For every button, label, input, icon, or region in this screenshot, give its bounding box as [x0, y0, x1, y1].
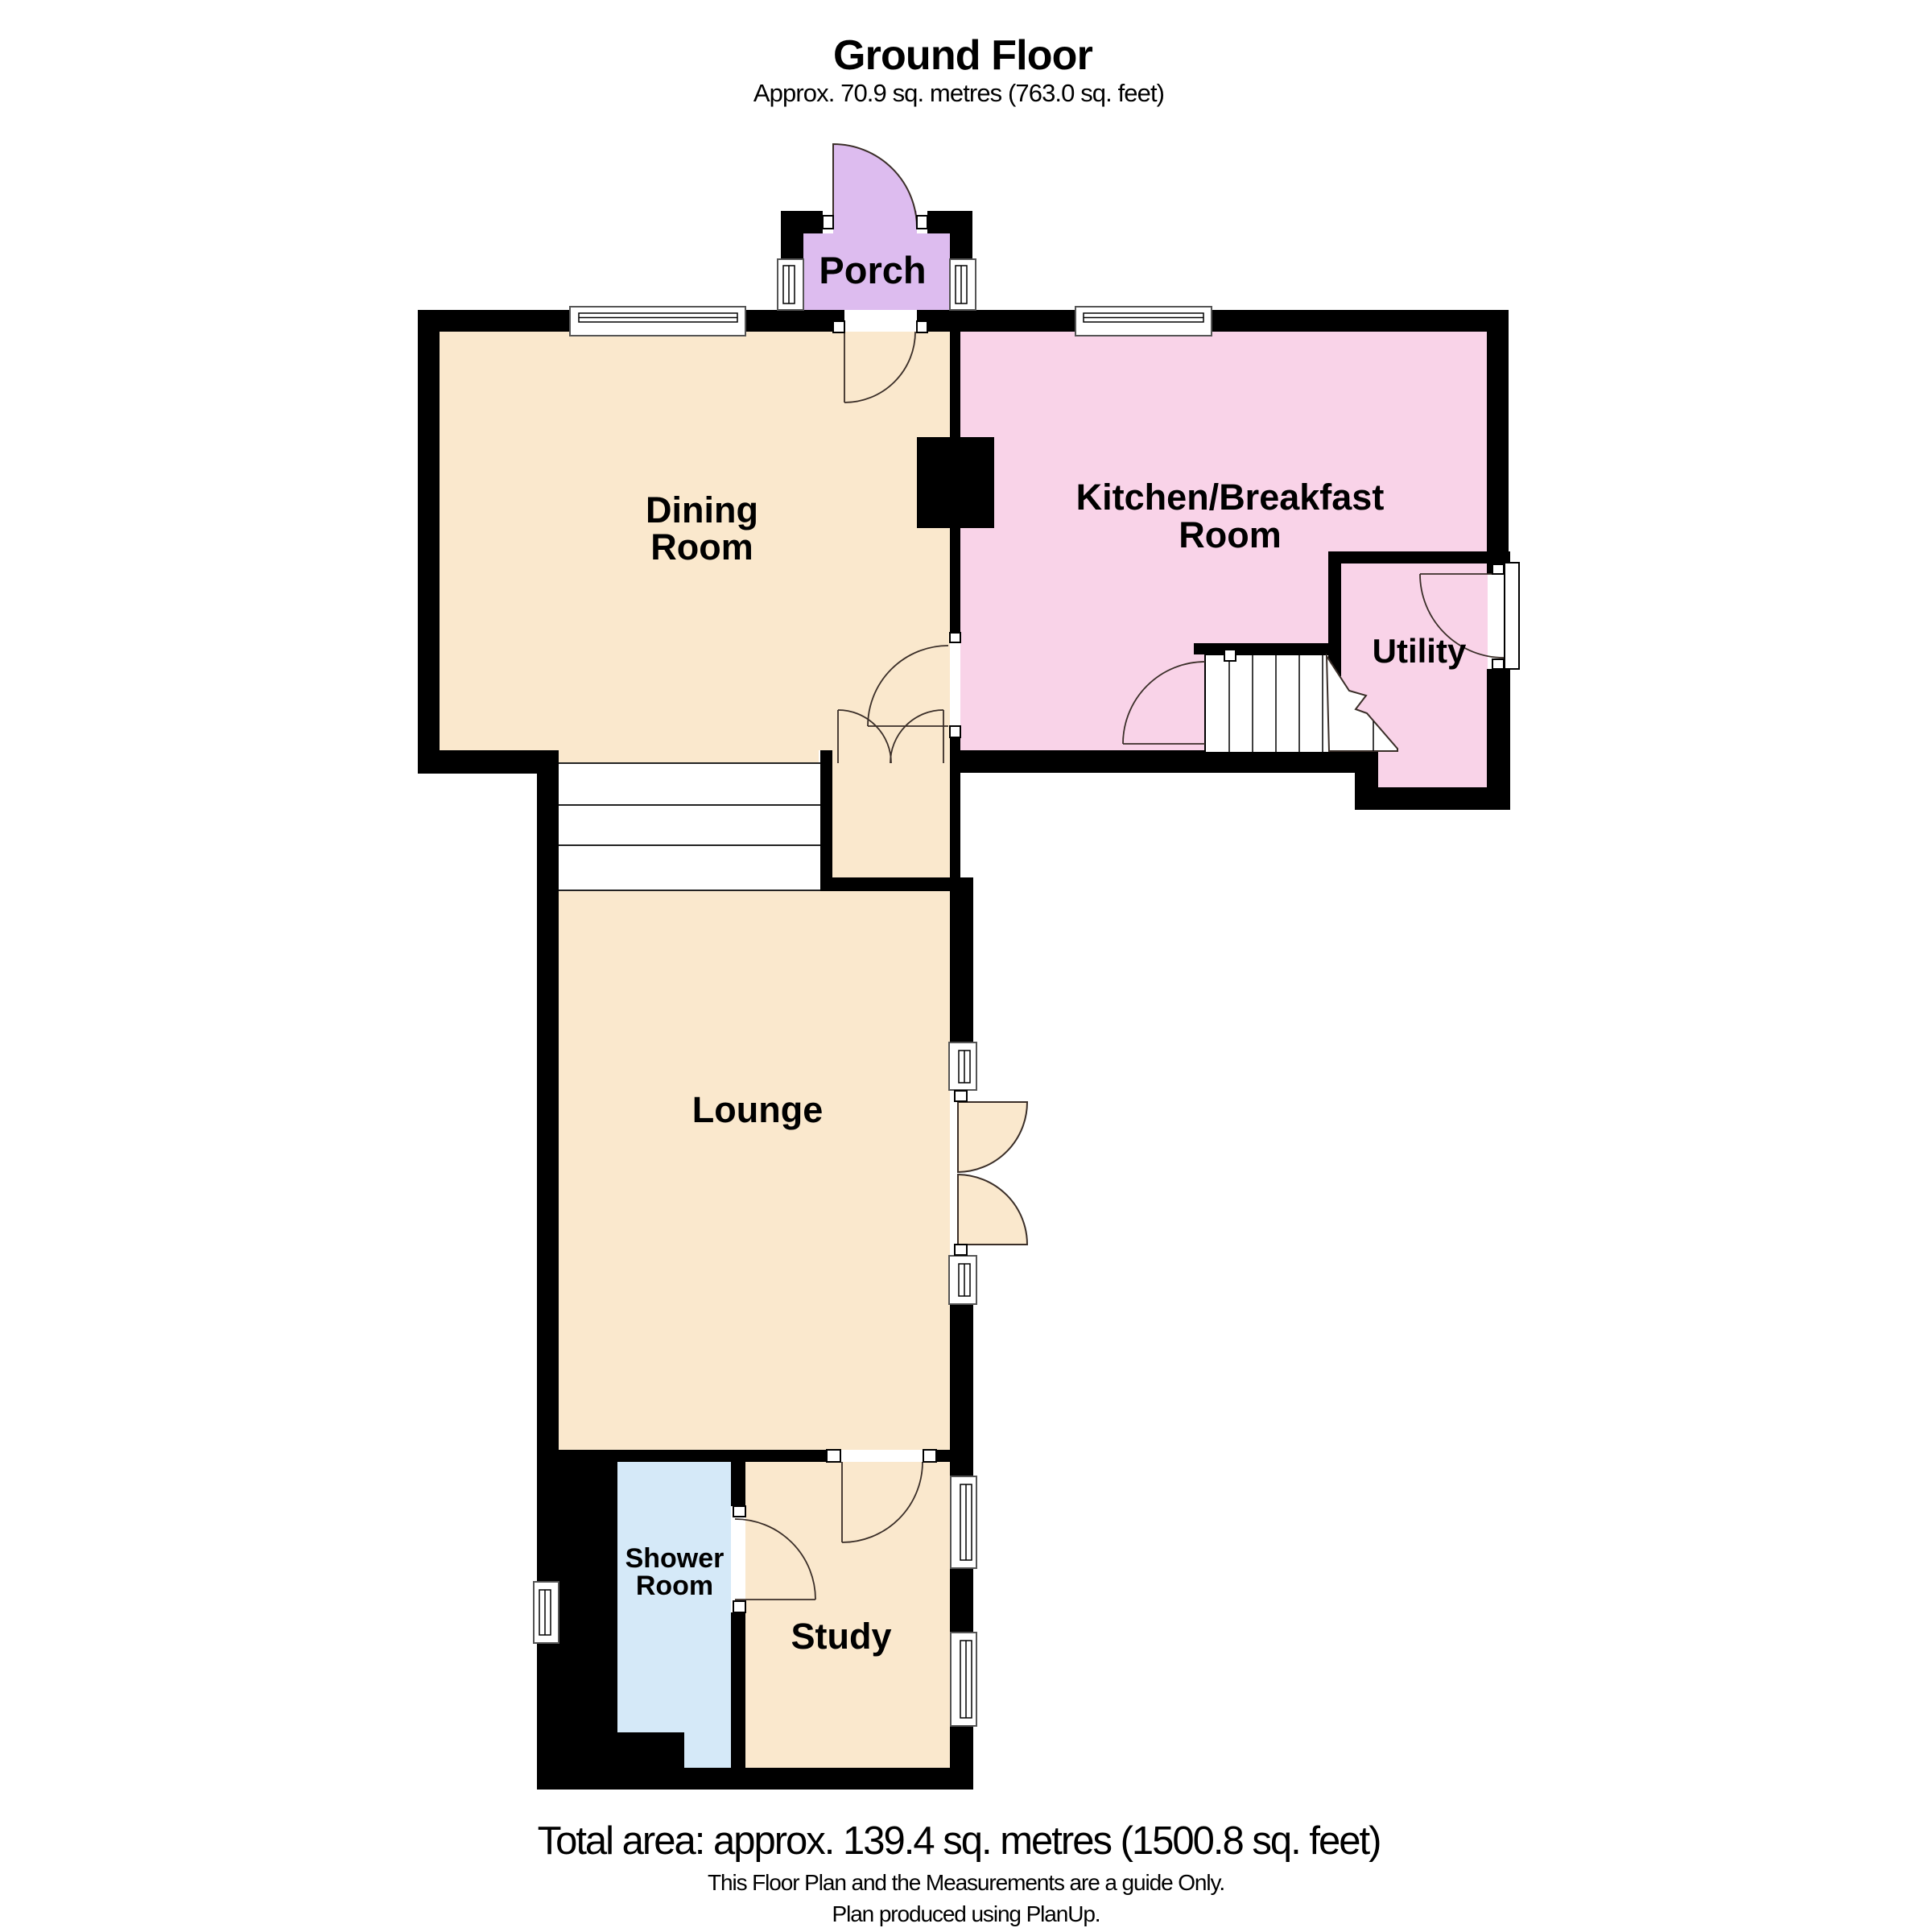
svg-text:Kitchen/Breakfast: Kitchen/Breakfast — [1076, 477, 1385, 518]
svg-text:Room: Room — [1179, 514, 1282, 555]
svg-text:Dining: Dining — [646, 489, 758, 530]
svg-text:Room: Room — [650, 526, 753, 568]
svg-text:Total area: approx. 139.4 sq.: Total area: approx. 139.4 sq. metres (15… — [538, 1819, 1381, 1863]
svg-text:Plan produced using PlanUp.: Plan produced using PlanUp. — [832, 1901, 1100, 1926]
svg-text:Approx. 70.9 sq. metres (763.0: Approx. 70.9 sq. metres (763.0 sq. feet) — [753, 79, 1164, 107]
svg-text:Porch: Porch — [819, 249, 926, 291]
svg-text:Utility: Utility — [1373, 632, 1467, 670]
svg-text:Ground Floor: Ground Floor — [833, 32, 1093, 79]
svg-text:This Floor Plan and the Measur: This Floor Plan and the Measurements are… — [708, 1870, 1224, 1895]
svg-text:Room: Room — [636, 1571, 713, 1601]
svg-text:Lounge: Lounge — [692, 1089, 823, 1130]
svg-text:Shower: Shower — [625, 1543, 724, 1574]
svg-text:Study: Study — [791, 1616, 891, 1657]
